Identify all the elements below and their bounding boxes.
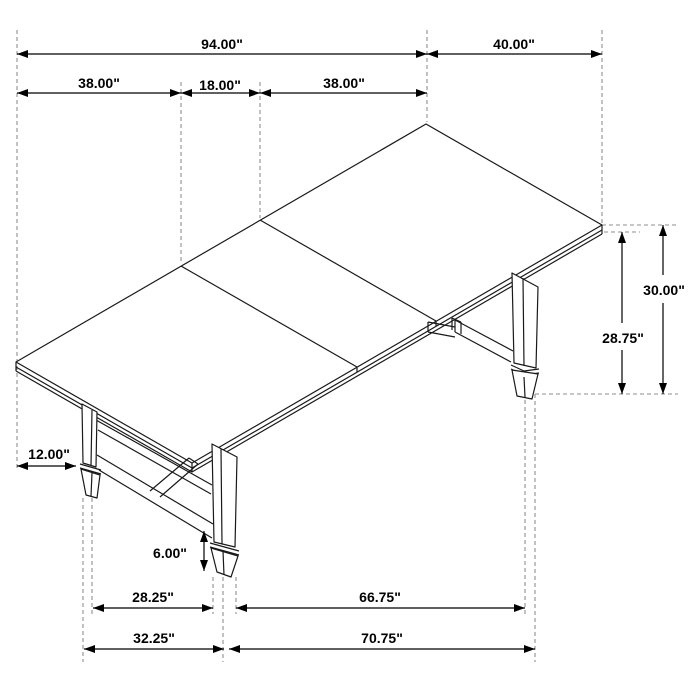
dim-label-span-short-outer: 32.25" <box>133 630 175 646</box>
dim-label-table-length: 94.00" <box>201 36 243 52</box>
dim-label-leaf-center: 18.00" <box>199 77 241 93</box>
dim-label-span-long-outer: 70.75" <box>361 630 403 646</box>
front-center-leg <box>212 444 237 547</box>
dim-label-span-short-inner: 28.25" <box>132 589 174 605</box>
technical-drawing-canvas: 94.00" 40.00" 38.00" 18.00" 38.00" 30.00… <box>0 0 700 700</box>
dim-label-overhang: 12.00" <box>28 446 70 462</box>
left-stretcher <box>97 455 213 538</box>
left-rear-leg <box>82 404 97 467</box>
right-stretcher <box>455 320 513 362</box>
dim-label-leaf-left: 38.00" <box>78 75 120 91</box>
table-illustration <box>16 124 602 577</box>
dim-label-table-width: 40.00" <box>493 36 535 52</box>
dim-label-height-underside: 28.75" <box>602 330 644 346</box>
dim-label-span-long-inner: 66.75" <box>359 589 401 605</box>
table-dimension-diagram: 94.00" 40.00" 38.00" 18.00" 38.00" 30.00… <box>0 0 700 700</box>
dim-label-stretcher-depth: 6.00" <box>153 545 187 561</box>
dim-label-height-overall: 30.00" <box>643 282 685 298</box>
dim-label-leaf-right: 38.00" <box>323 75 365 91</box>
right-leg <box>512 273 538 368</box>
